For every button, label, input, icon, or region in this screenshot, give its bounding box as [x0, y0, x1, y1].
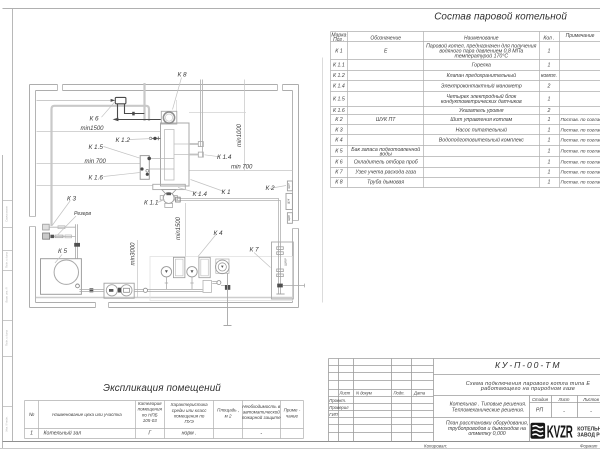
- svg-text:КОТЕЛЬНЫЙ: КОТЕЛЬНЫЙ: [577, 424, 600, 432]
- svg-text:Узел учета расхода газа: Узел учета расхода газа: [355, 170, 416, 176]
- svg-text:-: -: [563, 408, 565, 414]
- svg-text:min1500: min1500: [81, 126, 105, 132]
- svg-text:1: 1: [548, 148, 551, 154]
- svg-text:К 1.4: К 1.4: [333, 84, 345, 90]
- svg-text:1: 1: [30, 430, 33, 436]
- svg-text:К 4: К 4: [214, 230, 224, 237]
- svg-text:-: -: [590, 408, 592, 414]
- svg-text:К 5: К 5: [58, 248, 68, 255]
- svg-text:105-03: 105-03: [143, 418, 158, 423]
- svg-text:Наименование: Наименование: [464, 35, 499, 41]
- svg-text:Проверил: Проверил: [329, 405, 349, 410]
- svg-text:К 1.5: К 1.5: [333, 96, 345, 102]
- svg-text:К 1: К 1: [222, 189, 232, 196]
- svg-text:работающего на природном газе: работающего на природном газе: [480, 386, 575, 392]
- svg-text:1: 1: [548, 159, 551, 165]
- svg-text:КУ-П-00-ТМ: КУ-П-00-ТМ: [495, 360, 561, 370]
- svg-text:Обозначение: Обозначение: [370, 35, 401, 41]
- svg-text:К 1.6: К 1.6: [89, 174, 104, 181]
- svg-text:Постав. по согласов.: Постав. по согласов.: [561, 117, 600, 122]
- svg-text:1: 1: [548, 137, 551, 143]
- svg-text:по НПБ: по НПБ: [142, 412, 158, 417]
- svg-text:1: 1: [548, 117, 551, 123]
- svg-text:Подп. и дата: Подп. и дата: [5, 251, 9, 268]
- svg-text:Тепломеханические решения.: Тепломеханические решения.: [452, 408, 525, 414]
- svg-text:1: 1: [548, 180, 551, 186]
- svg-text:помещения по: помещения по: [174, 414, 205, 419]
- svg-text:Постав. по согласов.: Постав. по согласов.: [561, 137, 600, 142]
- svg-text:К 4: К 4: [335, 137, 342, 143]
- svg-text:компл.: компл.: [541, 73, 557, 79]
- svg-text:температурой 170°С: температурой 170°С: [455, 53, 509, 60]
- svg-text:Труба дымовая: Труба дымовая: [367, 180, 404, 186]
- svg-text:норм .: норм .: [182, 430, 197, 436]
- svg-text:Постав. по согласов.: Постав. по согласов.: [561, 127, 600, 132]
- svg-text:чание: чание: [286, 413, 299, 418]
- svg-text:Постав. по согласов.: Постав. по согласов.: [561, 159, 600, 164]
- svg-text:ПУЭ: ПУЭ: [184, 419, 193, 424]
- svg-text:min 700: min 700: [85, 159, 107, 165]
- svg-text:Экспликация помещений: Экспликация помещений: [103, 383, 221, 394]
- svg-text:-: -: [260, 431, 262, 437]
- svg-text:Водоподготовительный комплекс: Водоподготовительный комплекс: [439, 136, 524, 143]
- svg-text:К 1.4: К 1.4: [217, 154, 232, 161]
- svg-text:min 700: min 700: [231, 165, 253, 171]
- svg-text:К 2: К 2: [335, 117, 342, 123]
- svg-text:К 1.1: К 1.1: [144, 200, 159, 207]
- svg-text:Листов: Листов: [582, 397, 599, 402]
- svg-text:ГИП: ГИП: [329, 412, 338, 417]
- svg-text:Площадь ,: Площадь ,: [217, 408, 239, 413]
- svg-text:К 7: К 7: [335, 170, 343, 176]
- svg-text:автоматической: автоматической: [243, 409, 280, 415]
- svg-text:Копировал:: Копировал:: [424, 444, 448, 449]
- svg-text:м 2: м 2: [225, 413, 232, 418]
- svg-text:пожарной защите: пожарной защите: [242, 414, 281, 420]
- svg-text:К 7: К 7: [250, 246, 260, 253]
- svg-text:Необходимость в: Необходимость в: [242, 404, 281, 409]
- svg-text:Приме -: Приме -: [284, 408, 301, 413]
- svg-text:кондуктометрических датчиков: кондуктометрических датчиков: [441, 99, 522, 105]
- svg-text:ЩУТ: ЩУТ: [288, 183, 291, 189]
- svg-text:Инв. N подл.: Инв. N подл.: [5, 416, 9, 431]
- svg-text:Охладитель отбора проб: Охладитель отбора проб: [354, 159, 419, 165]
- svg-text:ШУК ПТ: ШУК ПТ: [376, 117, 396, 123]
- svg-text:1: 1: [548, 127, 551, 133]
- svg-text:Клапан предохранительный: Клапан предохранительный: [447, 72, 517, 79]
- svg-text:Категория: Категория: [138, 401, 162, 406]
- svg-text:1: 1: [548, 62, 551, 68]
- svg-text:К 3: К 3: [67, 195, 77, 202]
- svg-text:К 1.5: К 1.5: [89, 144, 104, 151]
- svg-text:Согласовано: Согласовано: [5, 206, 9, 222]
- svg-text:Лист: Лист: [339, 391, 351, 396]
- svg-text:среды или класс: среды или класс: [172, 408, 207, 413]
- svg-text:К 1.1: К 1.1: [333, 62, 345, 68]
- svg-text:Котельный зал: Котельный зал: [44, 429, 82, 436]
- svg-text:Состав паровой котельной: Состав паровой котельной: [434, 11, 567, 22]
- svg-text:Постав. по согласов.: Постав. по согласов.: [561, 148, 600, 153]
- svg-text:Наименование цеха или участ: Наименование цеха или участка: [52, 412, 122, 417]
- svg-text:Указатель уровня: Указатель уровня: [459, 108, 504, 114]
- svg-text:К 8: К 8: [178, 72, 188, 79]
- svg-text:Электроконтактный манометр: Электроконтактный манометр: [441, 83, 522, 90]
- svg-text:К 2: К 2: [266, 185, 276, 192]
- svg-text:Подп. и дата: Подп. и дата: [5, 329, 9, 346]
- svg-text:К 1.2: К 1.2: [116, 137, 131, 144]
- svg-text:воды: воды: [380, 151, 392, 157]
- svg-text:1: 1: [548, 48, 551, 54]
- svg-text:Взам. инв. N: Взам. инв. N: [5, 287, 9, 302]
- svg-text:Кол .: Кол .: [543, 35, 554, 41]
- svg-text:К 1.4: К 1.4: [193, 191, 208, 198]
- svg-text:ЩУК: ЩУК: [287, 198, 290, 204]
- svg-text:min1000: min1000: [237, 123, 243, 147]
- svg-text:Стадия: Стадия: [532, 397, 549, 402]
- svg-text:К 5: К 5: [335, 148, 342, 154]
- svg-text:Резерв: Резерв: [74, 211, 91, 217]
- svg-text:1: 1: [548, 96, 551, 102]
- svg-text:помещения: помещения: [138, 407, 163, 412]
- svg-text:РП: РП: [536, 408, 543, 414]
- svg-text:min3000: min3000: [130, 242, 136, 266]
- svg-text:N докум: N докум: [356, 391, 372, 396]
- svg-text:Формат: Формат: [580, 444, 598, 449]
- svg-text:2: 2: [547, 108, 551, 114]
- svg-text:Шит управления котлам: Шит управления котлам: [450, 117, 512, 123]
- svg-text:Насос питательный: Насос питательный: [456, 126, 507, 133]
- svg-text:К 1.6: К 1.6: [333, 108, 345, 114]
- svg-text:К 3: К 3: [335, 127, 342, 133]
- svg-text:min1500: min1500: [176, 216, 182, 240]
- svg-text:KVZR: KVZR: [547, 423, 573, 443]
- svg-text:отметку 0,000: отметку 0,000: [468, 431, 505, 437]
- svg-text:К 8: К 8: [335, 180, 342, 186]
- svg-text:К 1: К 1: [335, 48, 342, 54]
- svg-text:Лист: Лист: [557, 397, 569, 402]
- svg-text:№: №: [29, 412, 35, 418]
- svg-text:ЩУКР: ЩУКР: [283, 258, 287, 266]
- svg-text:Проект.: Проект.: [329, 398, 346, 403]
- svg-text:Примечание: Примечание: [566, 33, 595, 39]
- svg-text:К 6: К 6: [335, 159, 342, 165]
- svg-text:Е: Е: [384, 48, 388, 54]
- svg-text:2: 2: [547, 84, 551, 90]
- svg-text:Подп.: Подп.: [394, 391, 405, 396]
- svg-text:Постав. по согласов.: Постав. по согласов.: [561, 180, 600, 185]
- svg-text:ЗАВОД РОССИИ: ЗАВОД РОССИИ: [577, 432, 600, 438]
- svg-text:Поз .: Поз .: [333, 37, 344, 43]
- svg-text:Характеристика: Характеристика: [170, 402, 209, 407]
- svg-text:К 6: К 6: [90, 115, 100, 122]
- svg-text:К 1.2: К 1.2: [333, 73, 345, 79]
- svg-text:Дата: Дата: [413, 391, 426, 396]
- svg-text:Горелка: Горелка: [472, 62, 491, 68]
- svg-text:Постав. по согласов.: Постав. по согласов.: [561, 170, 600, 175]
- svg-text:ЩАВ: ЩАВ: [288, 215, 291, 221]
- svg-text:1: 1: [548, 170, 551, 176]
